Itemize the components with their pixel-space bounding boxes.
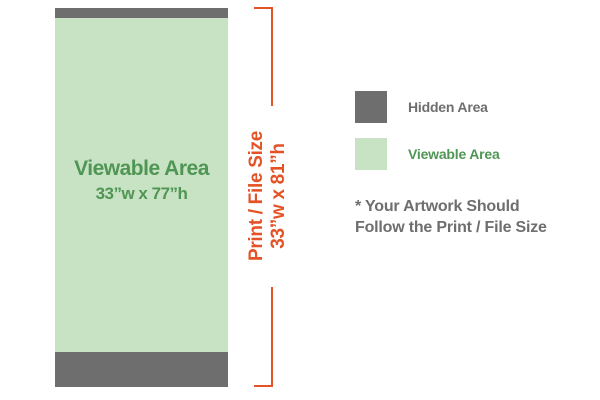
bracket-bottom-tick bbox=[254, 385, 273, 387]
viewable-area-label: Viewable Area bbox=[74, 158, 209, 180]
legend-label-viewable-area: Viewable Area bbox=[408, 146, 500, 162]
legend-item-hidden-area: Hidden Area bbox=[355, 91, 488, 123]
artwork-note-line1: * Your Artwork Should bbox=[355, 196, 547, 217]
banner-preview: Viewable Area 33”w x 77”h bbox=[55, 8, 228, 387]
viewable-area-size: 33”w x 77”h bbox=[96, 185, 188, 203]
hidden-area-swatch bbox=[355, 91, 387, 123]
print-file-size-label: Print / File Size 33”w x 81”h bbox=[246, 46, 292, 346]
hidden-area-top-strip bbox=[55, 8, 228, 18]
print-file-size-value: 33”w x 81”h bbox=[268, 46, 290, 346]
viewable-area-swatch bbox=[355, 138, 387, 170]
hidden-area-bottom-strip bbox=[55, 352, 228, 387]
legend-item-viewable-area: Viewable Area bbox=[355, 138, 500, 170]
banner-size-diagram: Viewable Area 33”w x 77”h Print / File S… bbox=[0, 0, 600, 400]
artwork-note: * Your Artwork Should Follow the Print /… bbox=[355, 196, 547, 238]
viewable-area-region: Viewable Area 33”w x 77”h bbox=[55, 18, 228, 352]
artwork-note-line2: Follow the Print / File Size bbox=[355, 217, 547, 238]
print-file-size-title: Print / File Size bbox=[246, 46, 268, 346]
legend-label-hidden-area: Hidden Area bbox=[408, 99, 488, 115]
